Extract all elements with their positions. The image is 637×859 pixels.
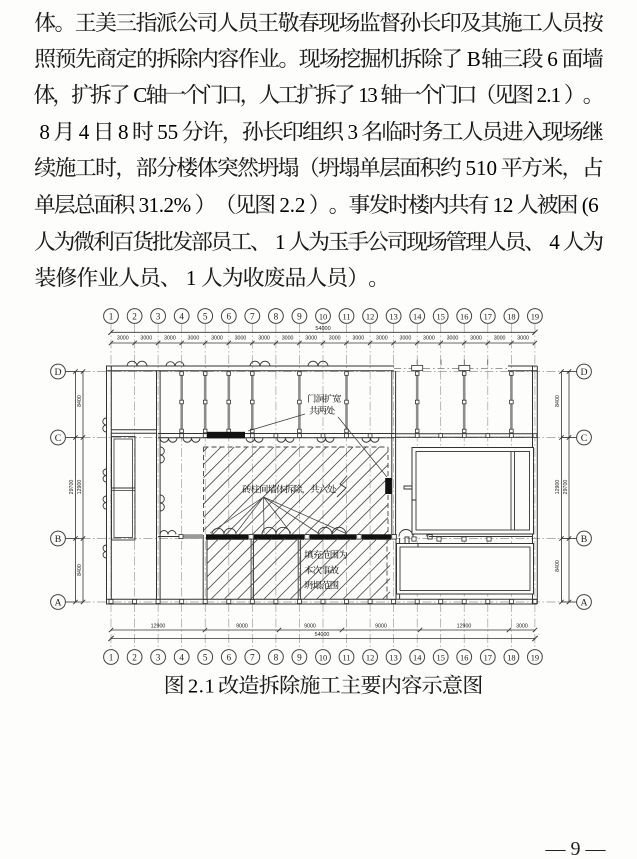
svg-text:3: 3 (156, 652, 161, 662)
svg-text:3: 3 (156, 311, 161, 321)
svg-text:9000: 9000 (304, 623, 316, 629)
svg-text:12: 12 (366, 653, 374, 662)
svg-text:12900: 12900 (555, 480, 561, 495)
svg-text:3000: 3000 (376, 336, 388, 342)
svg-text:D: D (580, 367, 587, 378)
svg-text:8400: 8400 (555, 560, 561, 572)
svg-text:3000: 3000 (282, 336, 294, 342)
svg-text:13: 13 (389, 653, 397, 662)
svg-text:2: 2 (132, 652, 137, 662)
svg-text:1: 1 (186, 266, 197, 290)
svg-text:2: 2 (132, 311, 137, 321)
svg-text:19: 19 (531, 312, 539, 321)
svg-text:B: B (467, 47, 481, 71)
svg-text:54000: 54000 (315, 326, 330, 332)
svg-text:12900: 12900 (151, 623, 166, 629)
svg-text:510: 510 (466, 156, 498, 180)
svg-text:6: 6 (547, 47, 558, 71)
svg-text:17: 17 (484, 312, 492, 321)
svg-text:6: 6 (227, 652, 232, 662)
svg-text:A: A (580, 598, 587, 609)
svg-text:1: 1 (109, 652, 114, 662)
svg-text:19: 19 (531, 653, 539, 662)
svg-text:6: 6 (227, 311, 232, 321)
svg-text:3000: 3000 (329, 336, 341, 342)
svg-text:17: 17 (484, 653, 492, 662)
svg-text:8: 8 (274, 311, 279, 321)
svg-text:3000: 3000 (140, 336, 152, 342)
svg-text:3000: 3000 (305, 336, 317, 342)
svg-text:16: 16 (460, 653, 468, 662)
svg-text:C: C (581, 433, 588, 444)
svg-text:8: 8 (39, 120, 50, 144)
svg-text:9000: 9000 (375, 623, 387, 629)
svg-text:7: 7 (250, 652, 255, 662)
svg-text:4: 4 (549, 230, 560, 254)
svg-text:5: 5 (203, 311, 208, 321)
svg-text:10: 10 (319, 312, 327, 321)
svg-text:16: 16 (460, 312, 468, 321)
svg-text:C: C (55, 433, 62, 444)
svg-text:3000: 3000 (211, 336, 223, 342)
svg-text:12900: 12900 (457, 623, 472, 629)
svg-text:8: 8 (274, 652, 279, 662)
svg-text:1: 1 (275, 230, 286, 254)
svg-text:4: 4 (179, 311, 184, 321)
svg-text:18: 18 (507, 653, 515, 662)
svg-text:13: 13 (389, 312, 397, 321)
svg-text:5: 5 (203, 652, 208, 662)
svg-text:D: D (54, 367, 61, 378)
svg-text:(6: (6 (582, 193, 599, 217)
svg-text:2.2: 2.2 (279, 193, 305, 217)
svg-text:3000: 3000 (400, 336, 412, 342)
svg-text:11: 11 (342, 312, 350, 321)
svg-text:12900: 12900 (77, 480, 83, 495)
svg-text:3000: 3000 (447, 336, 459, 342)
svg-text:3000: 3000 (494, 336, 506, 342)
svg-text:13: 13 (358, 83, 378, 107)
svg-text:12: 12 (493, 193, 514, 217)
svg-text:3000: 3000 (516, 623, 528, 629)
svg-text:— 9 —: — 9 — (545, 838, 607, 859)
svg-text:8400: 8400 (555, 395, 561, 407)
svg-text:54000: 54000 (315, 632, 330, 638)
svg-text:3000: 3000 (423, 336, 435, 342)
svg-text:29700: 29700 (563, 480, 569, 495)
svg-text:10: 10 (319, 653, 327, 662)
svg-text:3000: 3000 (470, 336, 482, 342)
svg-text:8400: 8400 (77, 564, 83, 576)
svg-text:3000: 3000 (517, 336, 529, 342)
svg-text:7: 7 (250, 311, 255, 321)
svg-text:8400: 8400 (77, 395, 83, 407)
svg-text:B: B (55, 534, 62, 545)
svg-text:C: C (133, 83, 147, 107)
svg-text:A: A (54, 598, 61, 609)
svg-text:B: B (581, 534, 588, 545)
svg-text:55: 55 (157, 120, 178, 144)
svg-text:31.2%: 31.2% (139, 193, 192, 217)
svg-text:3000: 3000 (188, 336, 200, 342)
svg-text:14: 14 (413, 312, 422, 321)
svg-text:2.1: 2.1 (188, 676, 215, 698)
svg-text:15: 15 (437, 312, 445, 321)
svg-text:3000: 3000 (117, 336, 129, 342)
svg-text:3000: 3000 (235, 336, 247, 342)
svg-text:3: 3 (348, 120, 359, 144)
svg-text:9000: 9000 (236, 623, 248, 629)
svg-text:3000: 3000 (164, 336, 176, 342)
svg-text:9: 9 (297, 652, 302, 662)
svg-text:9: 9 (297, 311, 302, 321)
svg-text:3000: 3000 (258, 336, 270, 342)
svg-text:8: 8 (118, 120, 129, 144)
svg-text:18: 18 (507, 312, 515, 321)
svg-text:1: 1 (109, 311, 114, 321)
svg-text:4: 4 (179, 652, 184, 662)
svg-text:12: 12 (366, 312, 374, 321)
svg-text:15: 15 (437, 653, 445, 662)
svg-text:29700: 29700 (69, 480, 75, 495)
svg-text:11: 11 (342, 653, 350, 662)
svg-text:2.1: 2.1 (537, 83, 562, 107)
svg-text:4: 4 (79, 120, 90, 144)
svg-text:3000: 3000 (352, 336, 364, 342)
svg-text:14: 14 (413, 653, 422, 662)
